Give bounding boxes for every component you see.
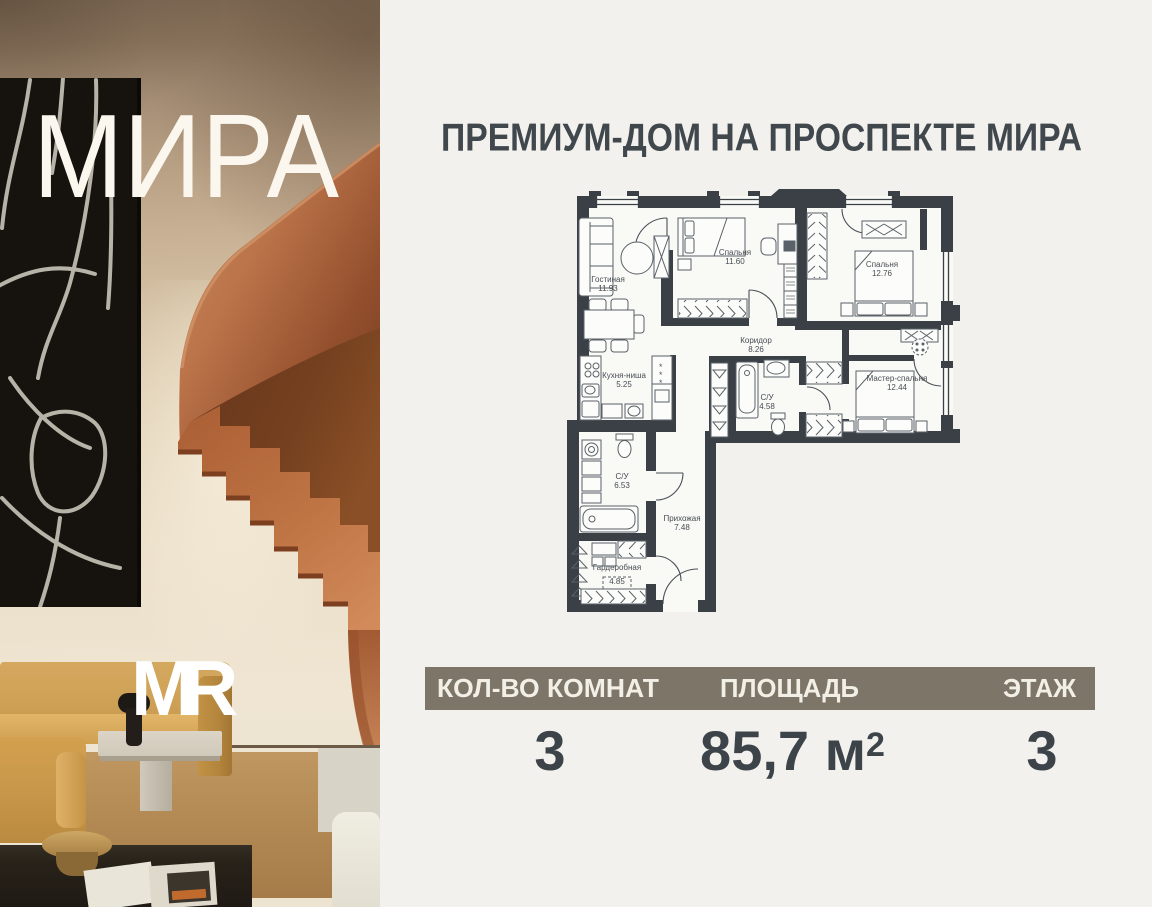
svg-text:Гардеробная: Гардеробная (593, 563, 641, 572)
svg-text:12.44: 12.44 (887, 383, 908, 392)
svg-text:7.48: 7.48 (674, 523, 690, 532)
svg-text:*: * (659, 378, 663, 388)
svg-text:КОЛ-ВО КОМНАТ: КОЛ-ВО КОМНАТ (437, 673, 659, 703)
svg-text:8.26: 8.26 (748, 345, 764, 354)
svg-text:5.25: 5.25 (616, 380, 632, 389)
svg-text:Спальня: Спальня (719, 248, 751, 257)
svg-text:R: R (182, 646, 238, 724)
svg-text:С/У: С/У (760, 393, 774, 402)
svg-text:Спальня: Спальня (866, 260, 898, 269)
svg-text:11.93: 11.93 (598, 284, 618, 293)
svg-text:4.58: 4.58 (759, 402, 775, 411)
svg-text:6.53: 6.53 (614, 481, 630, 490)
svg-text:МИРА: МИРА (33, 98, 340, 208)
svg-text:Прихожая: Прихожая (663, 514, 700, 523)
svg-text:С/У: С/У (615, 472, 629, 481)
svg-text:ПРЕМИУМ-ДОМ НА ПРОСПЕКТЕ МИРА: ПРЕМИУМ-ДОМ НА ПРОСПЕКТЕ МИРА (441, 117, 1082, 158)
svg-text:4.85: 4.85 (609, 577, 625, 586)
svg-text:Мастер-спальня: Мастер-спальня (867, 374, 928, 383)
svg-text:Кухня-ниша: Кухня-ниша (602, 371, 646, 380)
svg-text:ЭТАЖ: ЭТАЖ (1003, 673, 1076, 703)
svg-text:11.60: 11.60 (725, 257, 745, 266)
svg-text:Коридор: Коридор (740, 336, 772, 345)
svg-text:Гостиная: Гостиная (591, 275, 625, 284)
svg-text:ПЛОЩАДЬ: ПЛОЩАДЬ (720, 673, 859, 703)
svg-text:12.76: 12.76 (872, 269, 893, 278)
